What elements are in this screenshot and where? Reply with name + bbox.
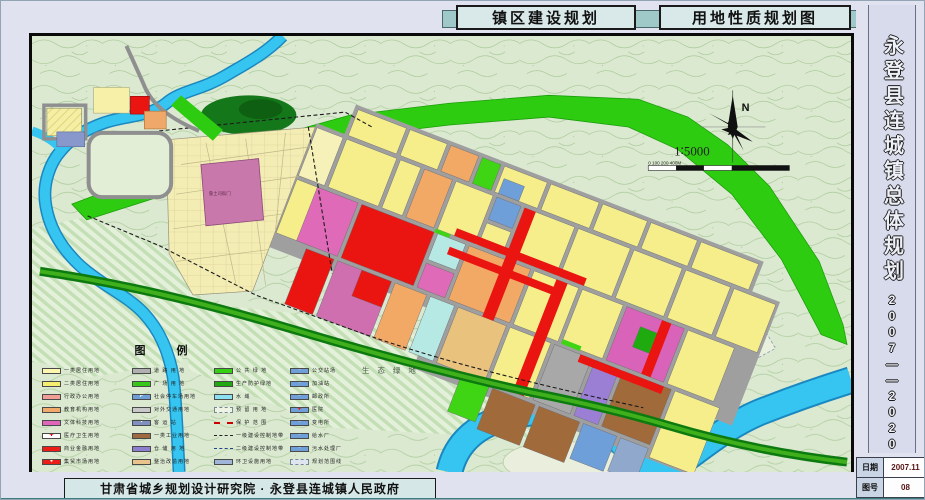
plan-title-vertical: 永登县连城镇总体规划	[878, 35, 907, 285]
legend-label: 教育机构用地	[64, 406, 100, 413]
legend-column: 一类居住用地二类居住用地行政办公用地教育机构用地文体科技用地✚医疗卫生用地商业金…	[42, 364, 100, 468]
sheet-number-label: 图号	[857, 478, 884, 497]
legend-column: ▫公交站场▫加油站▫邮政所✚医院▫变电所▫给水厂▫污水处理厂规划范围线	[290, 364, 342, 468]
legend-label: 公交站场	[312, 367, 336, 374]
legend-label: 一类居住用地	[64, 367, 100, 374]
legend-title: 图 例	[78, 342, 258, 358]
legend-label: 变电所	[312, 419, 330, 426]
legend-item: 一级建设控制地带	[214, 429, 284, 442]
legend-swatch	[42, 381, 61, 387]
legend-swatch: ▫	[290, 368, 309, 374]
legend-label: 整治改造用地	[154, 458, 190, 465]
scale-ratio: 1∶5000	[674, 145, 710, 159]
legend-item: 环卫设施用地	[214, 455, 284, 468]
sheet-title-map-label: 用地性质规划图	[692, 7, 818, 28]
legend-swatch: P	[132, 394, 151, 400]
legend-swatch: ▫	[290, 381, 309, 387]
legend-item: 公 共 绿 地	[214, 364, 284, 377]
legend-label: 道 路 用 地	[154, 367, 185, 374]
legend-label: 给水厂	[312, 432, 330, 439]
map-frame: 鲁土司衙门	[29, 33, 854, 475]
legend-swatch	[132, 368, 151, 374]
legend-item: 仓 储 用 地	[132, 442, 196, 455]
legend-swatch: ▫	[290, 394, 309, 400]
legend-label: 环卫设施用地	[236, 458, 272, 465]
scale-ticks: 0 100 200 400M	[648, 161, 681, 166]
legend-label: 文体科技用地	[64, 419, 100, 426]
legend-label: 社会停车场用地	[154, 393, 196, 400]
date-value: 2007.11	[884, 458, 925, 477]
sheet-title-series: 镇区建设规划	[456, 5, 636, 30]
plan-years-vertical: 2007——2020	[885, 293, 899, 453]
legend-item: P社会停车场用地	[132, 390, 196, 403]
legend-item: ▫加油站	[290, 377, 342, 390]
legend-item: 教育机构用地	[42, 403, 100, 416]
legend-swatch	[214, 459, 233, 465]
legend-item: ✚医疗卫生用地	[42, 429, 100, 442]
legend-swatch	[214, 394, 233, 400]
legend-swatch	[214, 368, 233, 374]
legend-item: 对外交通用地	[132, 403, 196, 416]
legend-label: 广 场 用 地	[154, 380, 185, 387]
legend-item: 规划范围线	[290, 455, 342, 468]
legend-item: ✚医院	[290, 403, 342, 416]
credit-box: 甘肃省城乡规划设计研究院 · 永登县连城镇人民政府	[64, 478, 436, 499]
legend-label: 医疗卫生用地	[64, 432, 100, 439]
legend-label: 加油站	[312, 380, 330, 387]
legend-label: 商业金融用地	[64, 445, 100, 452]
legend-item: 商业金融用地	[42, 442, 100, 455]
legend-item: ●集贸市场用地	[42, 455, 100, 468]
date-label: 日期	[857, 458, 884, 477]
legend-swatch	[132, 381, 151, 387]
legend-item: ▫给水厂	[290, 429, 342, 442]
legend-swatch	[290, 459, 309, 465]
legend-swatch	[132, 407, 151, 413]
legend-swatch: ▪	[132, 420, 151, 426]
legend-swatch: ▫	[290, 420, 309, 426]
north-label: N	[742, 102, 750, 114]
legend-columns: 一类居住用地二类居住用地行政办公用地教育机构用地文体科技用地✚医疗卫生用地商业金…	[38, 364, 328, 472]
date-row: 日期 2007.11	[857, 458, 925, 478]
legend-label: 医院	[312, 406, 324, 413]
legend-item: 二级建设控制地带	[214, 442, 284, 455]
sidebar-panel: 永登县连城镇总体规划 2007——2020	[868, 5, 916, 453]
legend-label: 对外交通用地	[154, 406, 190, 413]
legend-swatch	[42, 420, 61, 426]
legend-item: ▫变电所	[290, 416, 342, 429]
legend-item: ▫邮政所	[290, 390, 342, 403]
legend-swatch: ▫	[290, 433, 309, 439]
legend-label: 一类工业用地	[154, 432, 190, 439]
legend-label: 二类居住用地	[64, 380, 100, 387]
legend-swatch	[214, 448, 233, 449]
legend-label: 邮政所	[312, 393, 330, 400]
bottom-strip: 甘肃省城乡规划设计研究院 · 永登县连城镇人民政府	[1, 472, 856, 500]
legend-item: 水 域	[214, 390, 284, 403]
legend: 图 例 一类居住用地二类居住用地行政办公用地教育机构用地文体科技用地✚医疗卫生用…	[38, 342, 328, 472]
legend-label: 公 共 绿 地	[236, 367, 267, 374]
legend-item: 文体科技用地	[42, 416, 100, 429]
sidebar: 永登县连城镇总体规划 2007——2020 日期 2007.11 图号 08	[856, 1, 925, 500]
legend-item: 一类居住用地	[42, 364, 100, 377]
legend-label: 客 运 站	[154, 419, 177, 426]
legend-item: ▫公交站场	[290, 364, 342, 377]
legend-label: 一级建设控制地带	[236, 432, 284, 439]
eco-green-label: 生 态 绿 地	[362, 365, 419, 375]
legend-item: 整治改造用地	[132, 455, 196, 468]
legend-item: 生产防护绿地	[214, 377, 284, 390]
legend-label: 水 域	[236, 393, 250, 400]
legend-label: 集贸市场用地	[64, 458, 100, 465]
legend-label: 生产防护绿地	[236, 380, 272, 387]
legend-swatch	[214, 407, 233, 413]
legend-label: 污水处理厂	[312, 445, 342, 452]
legend-label: 仓 储 用 地	[154, 445, 185, 452]
legend-label: 二级建设控制地带	[236, 445, 284, 452]
legend-swatch	[42, 394, 61, 400]
legend-swatch	[42, 407, 61, 413]
sheet-number-value: 08	[884, 478, 925, 497]
legend-item: 保 护 范 围	[214, 416, 284, 429]
heritage-label: 鲁土司衙门	[209, 190, 231, 197]
legend-swatch	[132, 433, 151, 439]
legend-item: 广 场 用 地	[132, 377, 196, 390]
credit-text: 甘肃省城乡规划设计研究院 · 永登县连城镇人民政府	[100, 480, 400, 497]
legend-label: 规划范围线	[312, 458, 342, 465]
legend-swatch: ✚	[290, 407, 309, 413]
legend-item: 预 留 用 地	[214, 403, 284, 416]
legend-swatch	[214, 435, 233, 436]
legend-label: 行政办公用地	[64, 393, 100, 400]
plan-sheet: 镇区建设规划 用地性质规划图	[0, 0, 925, 500]
sheet-title-series-label: 镇区建设规划	[492, 7, 600, 28]
legend-swatch: ▫	[290, 446, 309, 452]
sheet-number-row: 图号 08	[857, 478, 925, 498]
legend-item: 一类工业用地	[132, 429, 196, 442]
legend-column: 道 路 用 地广 场 用 地P社会停车场用地对外交通用地▪客 运 站一类工业用地…	[132, 364, 196, 468]
legend-label: 预 留 用 地	[236, 406, 267, 413]
legend-item: 行政办公用地	[42, 390, 100, 403]
legend-item: 道 路 用 地	[132, 364, 196, 377]
sheet-title-map: 用地性质规划图	[659, 5, 851, 30]
legend-item: 二类居住用地	[42, 377, 100, 390]
legend-swatch	[214, 422, 233, 424]
legend-swatch	[42, 368, 61, 374]
legend-swatch: ✚	[42, 433, 61, 439]
legend-swatch	[214, 381, 233, 387]
sheet-info-table: 日期 2007.11 图号 08	[856, 457, 925, 498]
legend-swatch	[132, 446, 151, 452]
legend-swatch: ●	[42, 459, 61, 465]
legend-column: 公 共 绿 地生产防护绿地水 域预 留 用 地保 护 范 围一级建设控制地带二级…	[214, 364, 284, 468]
legend-label: 保 护 范 围	[236, 419, 267, 426]
legend-swatch	[42, 446, 61, 452]
legend-swatch	[132, 459, 151, 465]
legend-item: ▫污水处理厂	[290, 442, 342, 455]
legend-item: ▪客 运 站	[132, 416, 196, 429]
